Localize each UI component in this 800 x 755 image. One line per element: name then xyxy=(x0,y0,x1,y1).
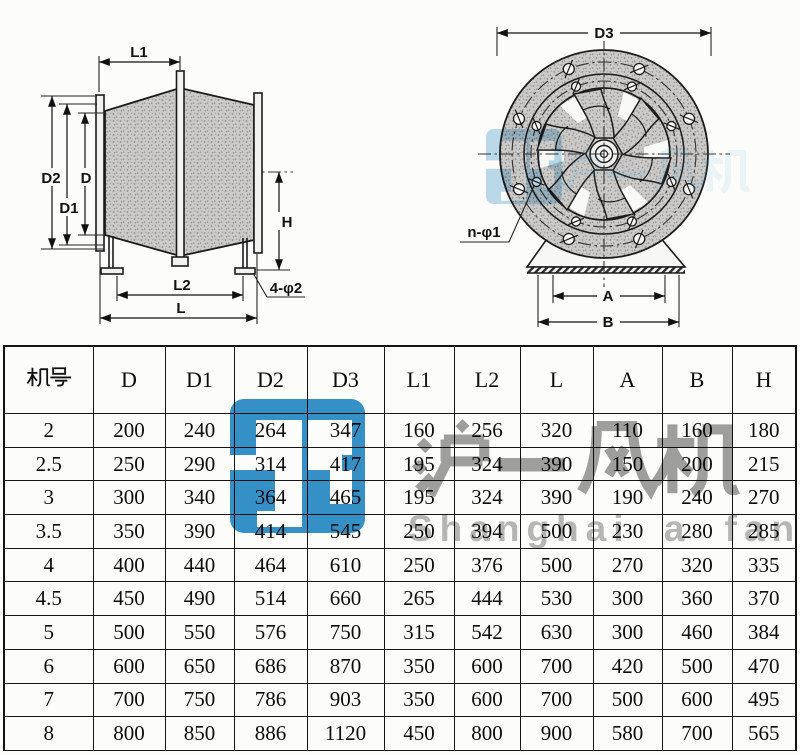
table-cell: 576 xyxy=(234,616,307,650)
table-cell: 376 xyxy=(454,548,520,582)
table-cell: 750 xyxy=(307,616,384,650)
front-view-drawing: D3 n-φ1 A B xyxy=(460,24,730,331)
table-cell: 580 xyxy=(593,717,662,751)
table-cell: 195 xyxy=(384,481,454,515)
table-cell: 200 xyxy=(662,447,732,481)
table-cell: 686 xyxy=(234,649,307,683)
table-cell: 394 xyxy=(454,515,520,549)
table-cell: 440 xyxy=(165,548,234,582)
table-cell: 370 xyxy=(732,582,796,616)
table-cell: 800 xyxy=(454,717,520,751)
table-row: 88008508861120450800900580700565 xyxy=(4,717,796,751)
table-cell: 280 xyxy=(662,515,732,549)
table-cell: 500 xyxy=(520,515,593,549)
table-cell: 650 xyxy=(165,649,234,683)
table-cell: 500 xyxy=(520,548,593,582)
table-cell: 750 xyxy=(165,683,234,717)
header-model xyxy=(4,346,93,414)
spec-table-body: 22002402643471602563201101601802.5250290… xyxy=(4,414,796,751)
table-cell: 900 xyxy=(520,717,593,751)
header-L2: L2 xyxy=(454,346,520,414)
table-cell: 545 xyxy=(307,515,384,549)
dim-label-foot-holes: 4-φ2 xyxy=(270,280,302,297)
table-cell: 450 xyxy=(93,582,165,616)
table-cell: 160 xyxy=(662,414,732,448)
table-cell: 2 xyxy=(4,414,93,448)
table-cell: 250 xyxy=(384,548,454,582)
table-row: 6600650686870350600700420500470 xyxy=(4,649,796,683)
table-cell: 215 xyxy=(732,447,796,481)
right-flange xyxy=(254,93,262,253)
dim-label-flange-holes: n-φ1 xyxy=(467,224,500,241)
table-row: 7700750786903350600700500600495 xyxy=(4,683,796,717)
table-cell: 384 xyxy=(732,616,796,650)
table-cell: 495 xyxy=(732,683,796,717)
table-cell: 460 xyxy=(662,616,732,650)
table-cell: 600 xyxy=(93,649,165,683)
dim-label-L: L xyxy=(176,300,185,317)
table-cell: 270 xyxy=(732,481,796,515)
table-cell: 465 xyxy=(307,481,384,515)
table-cell: 180 xyxy=(732,414,796,448)
mid-joint-pin xyxy=(172,257,188,266)
table-cell: 285 xyxy=(732,515,796,549)
table-cell: 390 xyxy=(520,447,593,481)
dim-label-L1: L1 xyxy=(130,44,148,61)
table-cell: 390 xyxy=(520,481,593,515)
table-cell: 903 xyxy=(307,683,384,717)
table-cell: 464 xyxy=(234,548,307,582)
table-cell: 347 xyxy=(307,414,384,448)
table-cell: 290 xyxy=(165,447,234,481)
dim-label-D: D xyxy=(81,170,92,187)
table-cell: 315 xyxy=(384,616,454,650)
table-cell: 500 xyxy=(93,616,165,650)
table-row: 3300340364465195324390190240270 xyxy=(4,481,796,515)
table-cell: 630 xyxy=(520,616,593,650)
table-cell: 1120 xyxy=(307,717,384,751)
right-foot-plate xyxy=(235,268,255,274)
table-cell: 364 xyxy=(234,481,307,515)
table-cell: 610 xyxy=(307,548,384,582)
header-L1: L1 xyxy=(384,346,454,414)
table-cell: 542 xyxy=(454,616,520,650)
table-cell: 230 xyxy=(593,515,662,549)
table-cell: 335 xyxy=(732,548,796,582)
table-row: 4.5450490514660265444530300360370 xyxy=(4,582,796,616)
technical-drawings: L1 D2 D1 D H xyxy=(0,0,800,345)
left-flange xyxy=(96,95,104,251)
table-cell: 700 xyxy=(520,683,593,717)
datasheet-page: L1 D2 D1 D H xyxy=(0,0,800,755)
table-row: 4400440464610250376500270320335 xyxy=(4,548,796,582)
table-cell: 500 xyxy=(593,683,662,717)
table-cell: 256 xyxy=(454,414,520,448)
left-foot-plate xyxy=(101,268,123,274)
table-cell: 3 xyxy=(4,481,93,515)
table-cell: 360 xyxy=(662,582,732,616)
mid-joint-flange xyxy=(177,71,185,258)
table-cell: 324 xyxy=(454,447,520,481)
table-cell: 3.5 xyxy=(4,515,93,549)
table-cell: 270 xyxy=(593,548,662,582)
dim-label-L2: L2 xyxy=(173,277,191,294)
table-cell: 500 xyxy=(662,649,732,683)
table-cell: 565 xyxy=(732,717,796,751)
table-cell: 850 xyxy=(165,717,234,751)
table-cell: 444 xyxy=(454,582,520,616)
table-cell: 4 xyxy=(4,548,93,582)
header-D1: D1 xyxy=(165,346,234,414)
table-cell: 300 xyxy=(593,582,662,616)
table-cell: 195 xyxy=(384,447,454,481)
table-cell: 324 xyxy=(454,481,520,515)
header-model-glyphs xyxy=(26,365,72,389)
table-cell: 550 xyxy=(165,616,234,650)
header-D: D xyxy=(93,346,165,414)
header-H: H xyxy=(732,346,796,414)
table-row: 3.5350390414545250394500230280285 xyxy=(4,515,796,549)
table-cell: 200 xyxy=(93,414,165,448)
table-cell: 600 xyxy=(454,683,520,717)
table-cell: 660 xyxy=(307,582,384,616)
table-header-row: D D1 D2 D3 L1 L2 L A B H xyxy=(4,346,796,414)
header-L: L xyxy=(520,346,593,414)
table-cell: 6 xyxy=(4,649,93,683)
table-cell: 870 xyxy=(307,649,384,683)
table-cell: 414 xyxy=(234,515,307,549)
table-cell: 300 xyxy=(93,481,165,515)
table-cell: 470 xyxy=(732,649,796,683)
table-cell: 530 xyxy=(520,582,593,616)
table-cell: 250 xyxy=(384,515,454,549)
table-cell: 320 xyxy=(662,548,732,582)
table-cell: 700 xyxy=(93,683,165,717)
table-cell: 110 xyxy=(593,414,662,448)
dim-label-D2: D2 xyxy=(41,170,60,187)
table-cell: 7 xyxy=(4,683,93,717)
side-view-drawing: L1 D2 D1 D H xyxy=(38,44,305,324)
table-cell: 340 xyxy=(165,481,234,515)
table-cell: 314 xyxy=(234,447,307,481)
table-cell: 800 xyxy=(93,717,165,751)
dimension-table: D D1 D2 D3 L1 L2 L A B H 220024026434716… xyxy=(3,345,797,751)
table-cell: 240 xyxy=(662,481,732,515)
table-cell: 700 xyxy=(662,717,732,751)
header-B: B xyxy=(662,346,732,414)
header-A: A xyxy=(593,346,662,414)
table-cell: 417 xyxy=(307,447,384,481)
table-cell: 8 xyxy=(4,717,93,751)
dim-label-B: B xyxy=(603,314,614,331)
table-cell: 320 xyxy=(520,414,593,448)
table-row: 2200240264347160256320110160180 xyxy=(4,414,796,448)
table-cell: 5 xyxy=(4,616,93,650)
table-row: 5500550576750315542630300460384 xyxy=(4,616,796,650)
table-cell: 160 xyxy=(384,414,454,448)
table-cell: 390 xyxy=(165,515,234,549)
table-cell: 600 xyxy=(662,683,732,717)
pedestal-hatch-band xyxy=(527,267,685,273)
table-cell: 264 xyxy=(234,414,307,448)
dim-label-D3: D3 xyxy=(594,25,613,42)
table-cell: 240 xyxy=(165,414,234,448)
table-cell: 190 xyxy=(593,481,662,515)
table-cell: 420 xyxy=(593,649,662,683)
table-cell: 350 xyxy=(93,515,165,549)
table-cell: 514 xyxy=(234,582,307,616)
table-cell: 400 xyxy=(93,548,165,582)
table-cell: 350 xyxy=(384,649,454,683)
dim-label-A: A xyxy=(603,288,614,305)
table-cell: 450 xyxy=(384,717,454,751)
header-D3: D3 xyxy=(307,346,384,414)
table-cell: 886 xyxy=(234,717,307,751)
table-cell: 265 xyxy=(384,582,454,616)
table-cell: 4.5 xyxy=(4,582,93,616)
dim-label-D1: D1 xyxy=(59,200,78,217)
header-D2: D2 xyxy=(234,346,307,414)
table-cell: 786 xyxy=(234,683,307,717)
table-cell: 300 xyxy=(593,616,662,650)
table-cell: 350 xyxy=(384,683,454,717)
dim-label-H: H xyxy=(282,214,293,231)
table-cell: 150 xyxy=(593,447,662,481)
table-cell: 700 xyxy=(520,649,593,683)
table-cell: 490 xyxy=(165,582,234,616)
table-row: 2.5250290314417195324390150200215 xyxy=(4,447,796,481)
table-cell: 250 xyxy=(93,447,165,481)
table-cell: 600 xyxy=(454,649,520,683)
table-cell: 2.5 xyxy=(4,447,93,481)
